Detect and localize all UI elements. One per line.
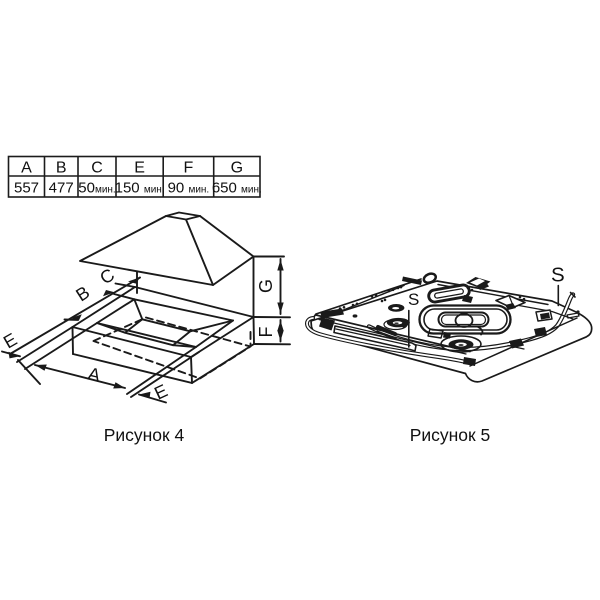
svg-text:F: F — [256, 327, 276, 338]
svg-text:G: G — [256, 279, 276, 293]
svg-text:S: S — [551, 264, 565, 287]
svg-text:E: E — [151, 380, 170, 403]
svg-text:B: B — [72, 282, 93, 305]
svg-text:S: S — [408, 290, 419, 309]
